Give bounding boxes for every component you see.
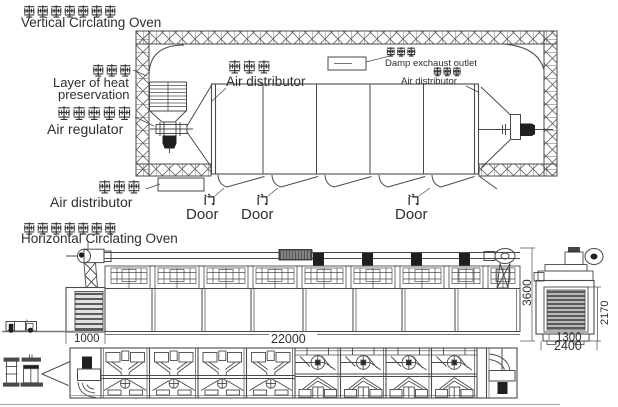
svg-text:Air distributor: Air distributor [401,76,457,87]
svg-text:1000: 1000 [74,333,100,345]
svg-text:Door: Door [241,206,274,223]
svg-text:2400: 2400 [554,339,582,353]
svg-text:Air regulator: Air regulator [47,121,124,137]
svg-text:Air distributor: Air distributor [226,74,306,89]
svg-text:3600: 3600 [520,279,534,306]
svg-text:Door: Door [186,206,219,223]
svg-text:Door: Door [395,206,428,223]
svg-text:22000: 22000 [271,332,306,346]
svg-text:Vertical Circlating Oven: Vertical Circlating Oven [21,15,161,30]
svg-text:Horizontal Circlating Oven: Horizontal Circlating Oven [21,231,178,246]
svg-text:Damp exchaust outlet: Damp exchaust outlet [385,58,477,69]
svg-text:preservation: preservation [58,87,130,102]
svg-text:Air distributor: Air distributor [50,194,133,210]
svg-text:2170: 2170 [599,301,611,325]
